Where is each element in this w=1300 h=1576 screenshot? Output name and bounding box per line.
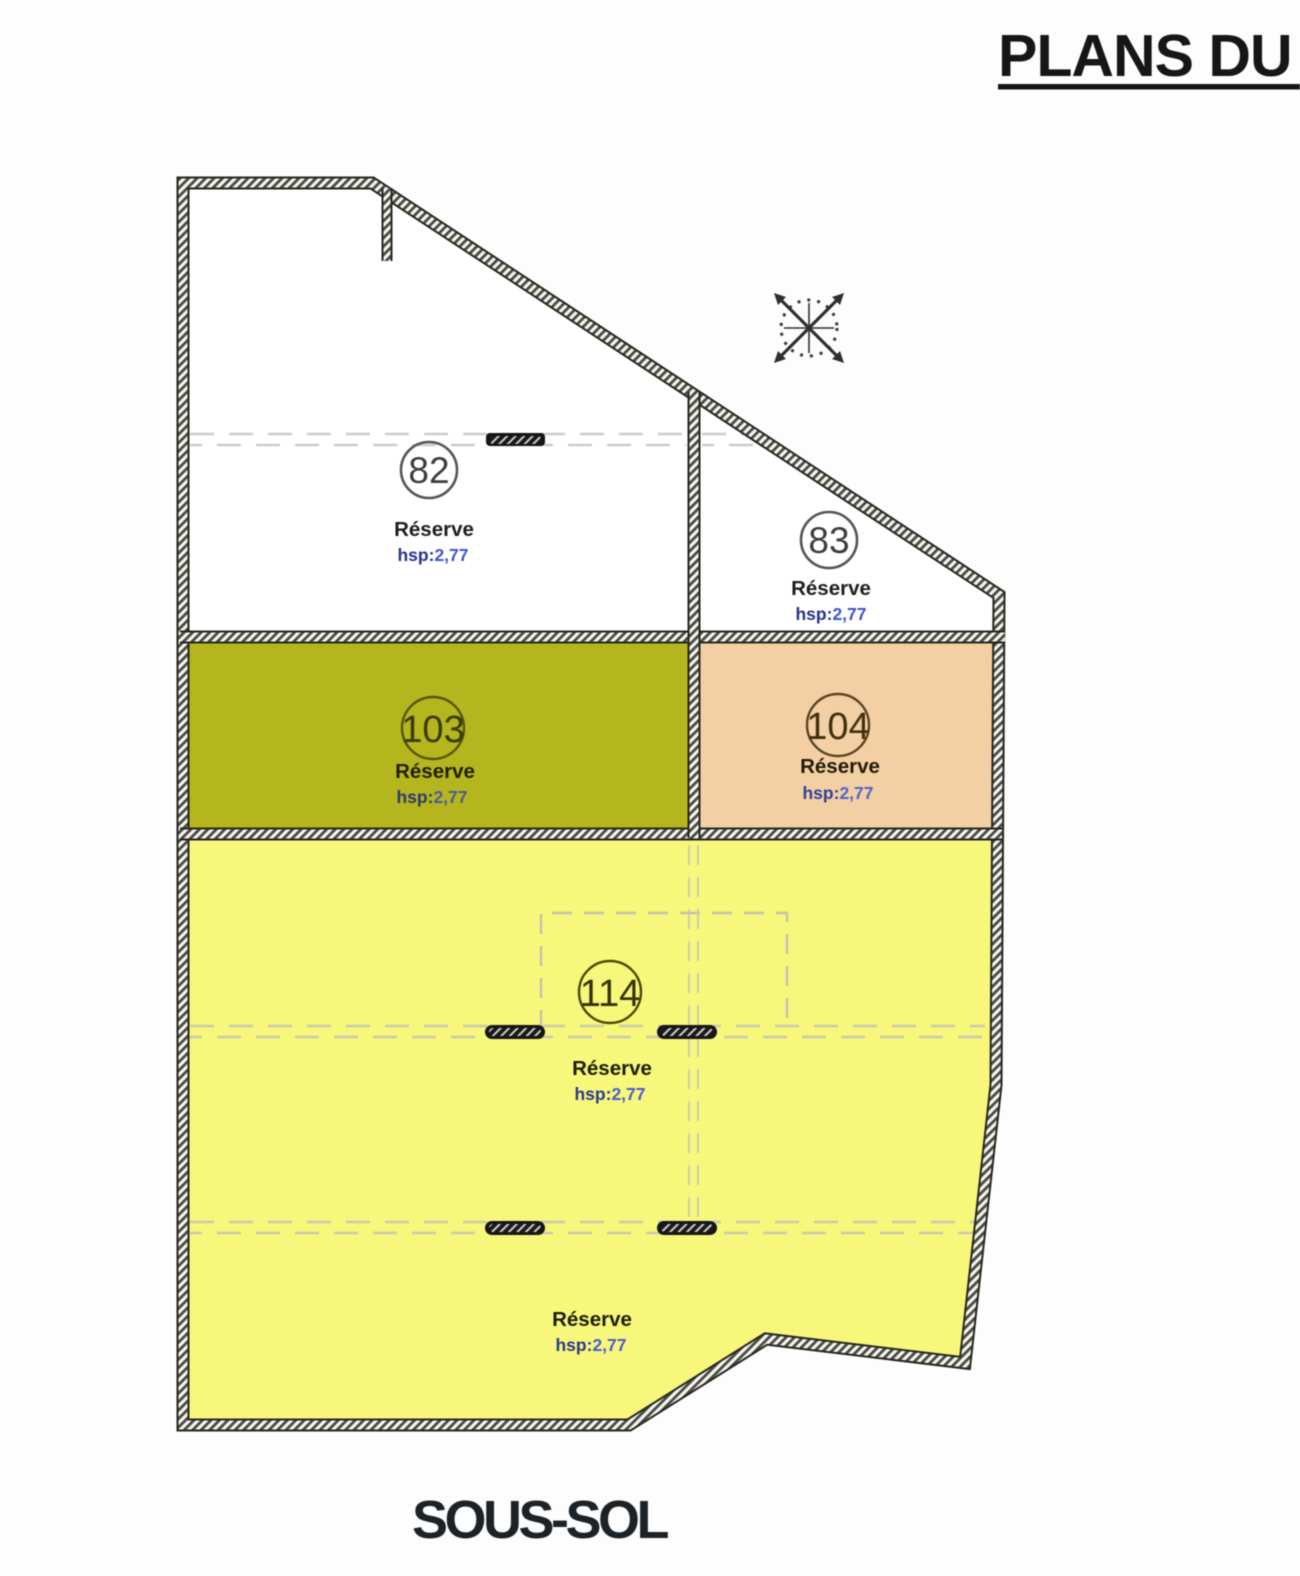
svg-text:Réserve: Réserve [394,518,474,541]
svg-text:PLANS DU: PLANS DU [998,23,1292,89]
svg-text:hsp:2,77: hsp:2,77 [802,783,873,803]
svg-text:103: 103 [401,709,464,751]
svg-text:82: 82 [408,450,449,491]
svg-text:Réserve: Réserve [395,760,475,783]
svg-text:hsp:2,77: hsp:2,77 [574,1084,645,1104]
svg-text:hsp:2,77: hsp:2,77 [396,787,467,807]
svg-text:hsp:2,77: hsp:2,77 [795,604,866,624]
svg-text:Réserve: Réserve [572,1057,652,1080]
svg-text:83: 83 [808,520,849,561]
svg-text:Réserve: Réserve [552,1308,632,1331]
svg-text:SOUS-SOL: SOUS-SOL [412,1490,669,1550]
svg-text:104: 104 [806,706,869,748]
svg-text:114: 114 [580,973,641,1015]
svg-text:hsp:2,77: hsp:2,77 [555,1335,626,1355]
svg-text:Réserve: Réserve [800,755,880,778]
svg-text:Réserve: Réserve [791,577,871,600]
svg-text:hsp:2,77: hsp:2,77 [397,545,468,565]
